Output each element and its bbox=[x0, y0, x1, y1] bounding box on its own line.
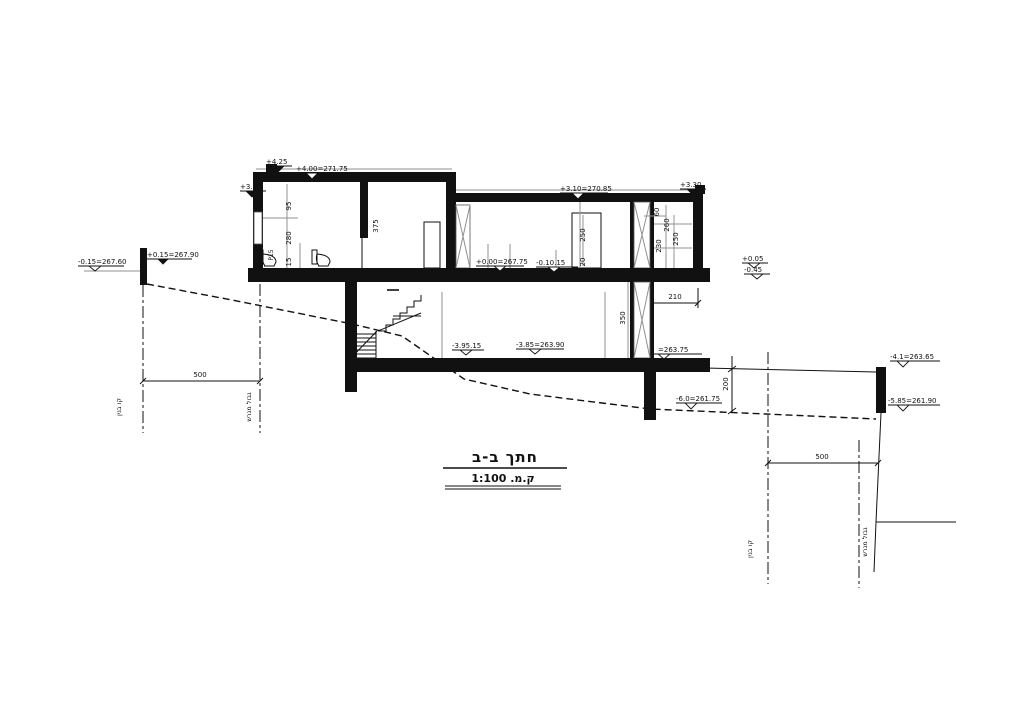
dim-label: 20 bbox=[579, 258, 587, 267]
dim-label: 250 bbox=[672, 232, 680, 245]
staircase bbox=[349, 290, 421, 360]
dim-label: 60 bbox=[653, 208, 661, 217]
wall-exterior-right bbox=[693, 202, 703, 268]
wall-face-line bbox=[874, 413, 881, 572]
level-label: -0.10.15 bbox=[536, 259, 565, 267]
terrain-dashed-line bbox=[147, 284, 876, 419]
level-label: +3.20 bbox=[240, 183, 261, 191]
shaft-lower bbox=[630, 282, 654, 358]
door-near-stair bbox=[424, 222, 440, 268]
dim-label: 500 bbox=[815, 453, 828, 461]
site-label-plot-boundary-right: גבול מגרש bbox=[861, 527, 869, 557]
floor-slab-upper bbox=[248, 268, 710, 282]
level-label: +4.25 bbox=[266, 158, 287, 166]
wall-interior-2 bbox=[446, 172, 456, 268]
dim-label: 200 bbox=[722, 377, 730, 390]
dim-label: 250 bbox=[579, 228, 587, 241]
level-label: +0.00=267.75 bbox=[476, 258, 528, 266]
level-label: +0.15=267.90 bbox=[147, 251, 199, 259]
level-label: -3.95.15 bbox=[452, 342, 481, 350]
site-elements bbox=[84, 248, 956, 588]
level-label: -5.85=261.90 bbox=[888, 397, 936, 405]
dimension-texts: 95 280 15 P15 375 250 20 60 260 250 230 … bbox=[193, 202, 828, 461]
dim-label: 375 bbox=[372, 219, 380, 232]
level-label: -4.1=263.65 bbox=[890, 353, 934, 361]
dim-label: 260 bbox=[663, 218, 671, 231]
level-label: =263.75 bbox=[658, 346, 688, 354]
drawing-sheet: +4.25 +4.00=271.75 +3.20 +3.10=270.85 +3… bbox=[0, 0, 1024, 724]
dim-label: 15 bbox=[285, 258, 293, 267]
dim-label: 500 bbox=[193, 371, 206, 379]
building-structure bbox=[248, 164, 710, 420]
retaining-wall bbox=[876, 367, 886, 413]
level-label: -0.15=267.60 bbox=[78, 258, 126, 266]
toilet-fixture-2 bbox=[312, 250, 330, 266]
shaft-upper bbox=[630, 202, 654, 268]
drawing-scale: ק.מ. 1:100 bbox=[471, 472, 534, 485]
dim-label: 210 bbox=[668, 293, 681, 301]
level-label: -3.85=263.90 bbox=[516, 341, 564, 349]
section-drawing-svg: +4.25 +4.00=271.75 +3.20 +3.10=270.85 +3… bbox=[0, 0, 1024, 724]
dim-label: 280 bbox=[285, 231, 293, 244]
dim-label: 95 bbox=[285, 202, 293, 211]
drawing-title: חתך ב-ב bbox=[472, 448, 538, 466]
site-label-building-line-left: קו בנין bbox=[115, 398, 123, 416]
dim-label: 230 bbox=[655, 239, 663, 252]
roof-slab-upper bbox=[253, 172, 456, 182]
dim-label: 350 bbox=[619, 311, 627, 324]
site-label-building-line-right: קו בנין bbox=[746, 540, 754, 558]
garden-wall-left bbox=[140, 248, 147, 285]
dimension-lines bbox=[140, 184, 881, 466]
site-label-plot-boundary-left: גבול מגרש bbox=[245, 392, 253, 422]
floor-slab-lower bbox=[345, 358, 710, 372]
dim-label: P15 bbox=[268, 249, 275, 260]
level-label: +0.05 bbox=[742, 255, 763, 263]
wall-lower-left bbox=[345, 282, 357, 392]
column-foundation bbox=[644, 372, 656, 420]
level-label: +4.00=271.75 bbox=[296, 165, 348, 173]
title-block: חתך ב-ב ק.מ. 1:100 bbox=[443, 448, 567, 489]
level-label: -6.0=261.75 bbox=[676, 395, 720, 403]
level-label: +3.30 bbox=[680, 181, 701, 189]
wall-interior-1 bbox=[360, 182, 368, 238]
level-label: +3.10=270.85 bbox=[560, 185, 612, 193]
shaft-hatch-1 bbox=[456, 205, 470, 268]
level-label: -0.45 bbox=[744, 266, 762, 274]
wall-window-left bbox=[254, 212, 262, 244]
